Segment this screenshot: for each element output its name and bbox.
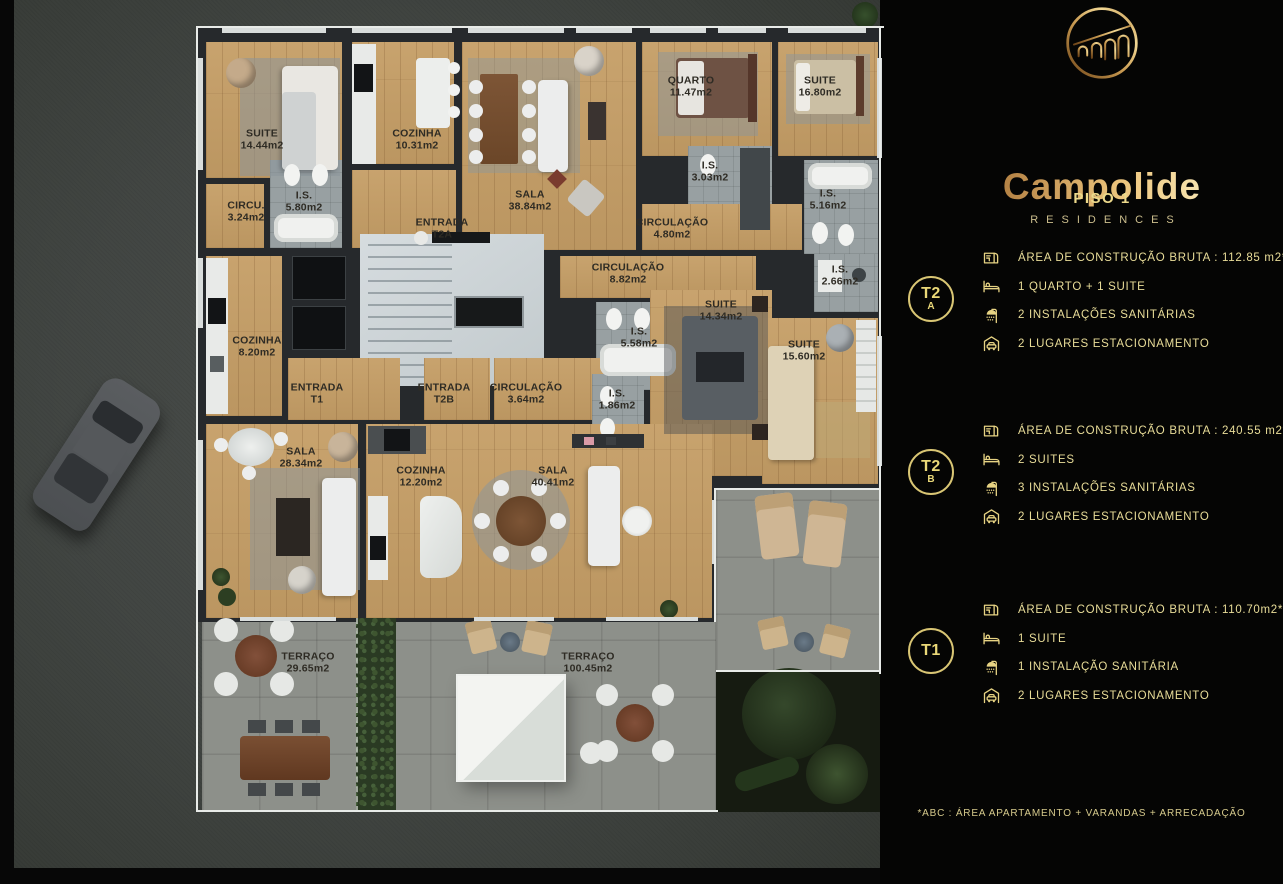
room-label: I.S.1.86m2 — [599, 388, 636, 413]
kitchen-sink — [210, 356, 224, 372]
bed-throw — [696, 352, 744, 382]
terrace-chair — [270, 618, 294, 642]
room-label: I.S.5.80m2 — [286, 190, 323, 215]
frame-edge-bottom — [0, 868, 880, 884]
cooktop — [384, 429, 410, 451]
room-label: SUITE15.60m2 — [783, 339, 826, 364]
spec-row: ÁREA DE CONSTRUÇÃO BRUTA : 112.85 m2* — [980, 246, 1283, 270]
elevator-cab-2 — [292, 306, 346, 350]
terrace-dining-table — [240, 736, 330, 780]
shower-floor — [740, 148, 770, 230]
round-table — [228, 428, 274, 466]
window — [222, 28, 326, 33]
badge-sublabel: A — [927, 302, 934, 311]
spec-row: 2 LUGARES ESTACIONAMENTO — [980, 332, 1283, 356]
terrace-outline — [714, 488, 881, 490]
info-panel: Campolide RESIDENCES PISO 1 T2 A ÁREA DE… — [880, 0, 1283, 884]
dining-table — [480, 74, 518, 164]
room-label: I.S.5.58m2 — [621, 326, 658, 351]
armchair — [328, 432, 358, 462]
room-label: CIRCU.3.24m2 — [227, 200, 264, 225]
room-label: TERRAÇO29.65m2 — [281, 651, 334, 676]
spec-list: ÁREA DE CONSTRUÇÃO BRUTA : 240.55 m2* 2 … — [980, 419, 1283, 533]
spec-text: 2 LUGARES ESTACIONAMENTO — [1018, 690, 1209, 702]
window — [718, 28, 766, 33]
floor-area-icon — [980, 247, 1002, 269]
room-label: ENTRADAT2A — [416, 217, 469, 242]
cooktop — [370, 536, 386, 560]
car-garage-icon — [980, 506, 1002, 528]
room-label: COZINHA8.20m2 — [232, 335, 281, 360]
spec-list: ÁREA DE CONSTRUÇÃO BRUTA : 112.85 m2* 1 … — [980, 246, 1283, 360]
marble-island — [420, 496, 462, 578]
spec-row: 2 SUITES — [980, 448, 1283, 472]
unit-spec-t1: T1 ÁREA DE CONSTRUÇÃO BRUTA : 110.70m2* … — [880, 596, 1283, 716]
car-garage-icon — [980, 685, 1002, 707]
nightstand — [752, 296, 768, 312]
spec-row: 2 LUGARES ESTACIONAMENTO — [980, 505, 1283, 529]
spec-row: 1 INSTALAÇÃO SANITÁRIA — [980, 655, 1283, 679]
spec-list: ÁREA DE CONSTRUÇÃO BRUTA : 110.70m2* 1 S… — [980, 598, 1283, 712]
terrace-side-table — [500, 632, 520, 652]
spec-row: 1 QUARTO + 1 SUITE — [980, 275, 1283, 299]
bed-icon — [980, 449, 1002, 471]
window — [198, 258, 203, 328]
garden-outline — [716, 670, 881, 672]
spec-text: 1 QUARTO + 1 SUITE — [1018, 281, 1146, 293]
wardrobe — [856, 320, 876, 412]
building-outline — [196, 26, 884, 28]
sofa — [588, 466, 620, 566]
floor-title: PISO 1 — [880, 190, 1283, 207]
room-label: SALA28.34m2 — [280, 446, 323, 471]
armchair — [826, 324, 854, 352]
window — [198, 440, 203, 590]
unit-badge-t2a: T2 A — [908, 276, 954, 322]
floor-area-icon — [980, 420, 1002, 442]
palm-tree — [806, 744, 868, 804]
spec-row: ÁREA DE CONSTRUÇÃO BRUTA : 240.55 m2* — [980, 419, 1283, 443]
badge-sublabel: B — [927, 475, 934, 484]
terrace-chair — [580, 742, 602, 764]
plant — [212, 568, 230, 586]
badge-label: T2 — [921, 287, 941, 301]
spec-row: 1 SUITE — [980, 627, 1283, 651]
room-label: CIRCULAÇÃO3.64m2 — [490, 382, 563, 407]
garden-bush — [733, 754, 802, 793]
toilet — [284, 164, 300, 186]
room-label: COZINHA12.20m2 — [396, 465, 445, 490]
room-label: TERRAÇO100.45m2 — [561, 651, 614, 676]
terrace-chair — [652, 684, 674, 706]
spec-text: 2 LUGARES ESTACIONAMENTO — [1018, 338, 1209, 350]
side-table — [588, 102, 606, 140]
headboard — [856, 56, 864, 116]
garden — [716, 672, 880, 812]
lounge-chair — [288, 566, 316, 594]
spec-text: 1 SUITE — [1018, 633, 1066, 645]
toilet — [606, 308, 622, 330]
spec-text: 2 SUITES — [1018, 454, 1075, 466]
aqueduct-arches-logo-icon — [1063, 4, 1141, 82]
terrace-door — [240, 617, 336, 621]
dining-chair — [469, 80, 483, 94]
bar-stool — [448, 62, 460, 74]
room-label: ENTRADAT1 — [291, 382, 344, 407]
floor-area-icon — [980, 599, 1002, 621]
room-label: SUITE14.34m2 — [700, 299, 743, 324]
building-outline — [196, 26, 198, 812]
dining-chair — [214, 438, 228, 452]
window — [352, 28, 452, 33]
dining-table-round — [496, 496, 546, 546]
terrace-table-round — [235, 635, 277, 677]
terrace-outline — [196, 810, 718, 812]
room-label: SUITE14.44m2 — [241, 128, 284, 153]
window — [788, 28, 866, 33]
window — [576, 28, 632, 33]
armchair — [226, 58, 256, 88]
sofa — [322, 478, 356, 596]
sun-lounger — [802, 500, 848, 568]
hedge — [356, 618, 396, 812]
spec-row: 2 LUGARES ESTACIONAMENTO — [980, 684, 1283, 708]
room-label: QUARTO11.47m2 — [668, 75, 715, 100]
bed-icon — [980, 276, 1002, 298]
sun-lounger — [754, 492, 800, 560]
toilet — [812, 222, 828, 244]
kitchen-counter — [206, 258, 228, 414]
building-outline — [879, 26, 881, 674]
spec-row: ÁREA DE CONSTRUÇÃO BRUTA : 110.70m2* — [980, 598, 1283, 622]
garden-tree — [742, 668, 836, 760]
kitchen-counter — [352, 44, 376, 164]
terrace-side-table — [794, 632, 814, 652]
footnote: *ABC : ÁREA APARTAMENTO + VARANDAS + ARR… — [880, 808, 1283, 819]
terrace-door — [474, 617, 554, 621]
unit-spec-t2b: T2 B ÁREA DE CONSTRUÇÃO BRUTA : 240.55 m… — [880, 417, 1283, 537]
spec-row: 3 INSTALAÇÕES SANITÁRIAS — [980, 476, 1283, 500]
shower-icon — [980, 304, 1002, 326]
room-label: SALA38.84m2 — [509, 189, 552, 214]
spec-text: 2 INSTALAÇÕES SANITÁRIAS — [1018, 309, 1196, 321]
spec-text: 2 LUGARES ESTACIONAMENTO — [1018, 511, 1209, 523]
elevator-shaft — [284, 248, 352, 354]
elevator-cab-1 — [292, 256, 346, 300]
room-label: COZINHA10.31m2 — [392, 128, 441, 153]
terrace-door — [606, 617, 698, 621]
sofa — [538, 80, 568, 172]
badge-label: T2 — [921, 460, 941, 474]
cooktop — [354, 64, 373, 92]
bathtub — [808, 163, 872, 189]
badge-label: T1 — [921, 644, 941, 658]
brand-subtitle: RESIDENCES — [880, 214, 1283, 226]
room-label: ENTRADAT2B — [418, 382, 471, 407]
headboard — [748, 54, 757, 122]
spec-row: 2 INSTALAÇÕES SANITÁRIAS — [980, 303, 1283, 327]
window — [468, 28, 564, 33]
armchair — [574, 46, 604, 76]
spec-text: 1 INSTALAÇÃO SANITÁRIA — [1018, 661, 1179, 673]
unit-badge-t1: T1 — [908, 628, 954, 674]
bed-blanket — [282, 92, 316, 170]
street-shrub — [852, 2, 878, 28]
bathtub — [274, 214, 338, 242]
room-label: I.S.5.16m2 — [810, 188, 847, 213]
room-label: CIRCULAÇÃO4.80m2 — [636, 217, 709, 242]
books — [584, 437, 594, 445]
site-plan-scene: SUITE14.44m2 COZINHA10.31m2 I.S.5.80m2 C… — [0, 0, 880, 884]
window — [198, 58, 203, 170]
room-label: CIRCULAÇÃO8.82m2 — [592, 262, 665, 287]
cooktop — [208, 298, 226, 324]
bed-icon — [980, 628, 1002, 650]
media-console — [572, 434, 644, 448]
room-label: SUITE16.80m2 — [799, 75, 842, 100]
dining-chair — [550, 513, 566, 529]
room-label: SALA40.41m2 — [532, 465, 575, 490]
shower-icon — [980, 656, 1002, 678]
coffee-table — [276, 498, 310, 556]
terrace-table-round — [616, 704, 654, 742]
spec-text: ÁREA DE CONSTRUÇÃO BRUTA : 112.85 m2* — [1018, 252, 1283, 264]
shower-icon — [980, 477, 1002, 499]
spec-text: ÁREA DE CONSTRUÇÃO BRUTA : 110.70m2* — [1018, 604, 1283, 616]
window — [650, 28, 706, 33]
unit-badge-t2b: T2 B — [908, 449, 954, 495]
plant — [660, 600, 678, 618]
terrace-outline — [714, 490, 716, 622]
frame-edge-left — [0, 0, 14, 884]
spec-text: 3 INSTALAÇÕES SANITÁRIAS — [1018, 482, 1196, 494]
room-label: I.S.2.66m2 — [822, 264, 859, 289]
floorplan-sheet: SUITE14.44m2 COZINHA10.31m2 I.S.5.80m2 C… — [0, 0, 1283, 884]
terrace-dining-chair — [248, 720, 266, 733]
room-label: I.S.3.03m2 — [692, 160, 729, 185]
car-garage-icon — [980, 333, 1002, 355]
stair-void — [454, 296, 524, 328]
pergola — [458, 676, 564, 780]
spec-text: ÁREA DE CONSTRUÇÃO BRUTA : 240.55 m2* — [1018, 425, 1283, 437]
kitchen-island — [416, 58, 450, 128]
coffee-table-round — [622, 506, 652, 536]
unit-spec-t2a: T2 A ÁREA DE CONSTRUÇÃO BRUTA : 112.85 m… — [880, 244, 1283, 364]
